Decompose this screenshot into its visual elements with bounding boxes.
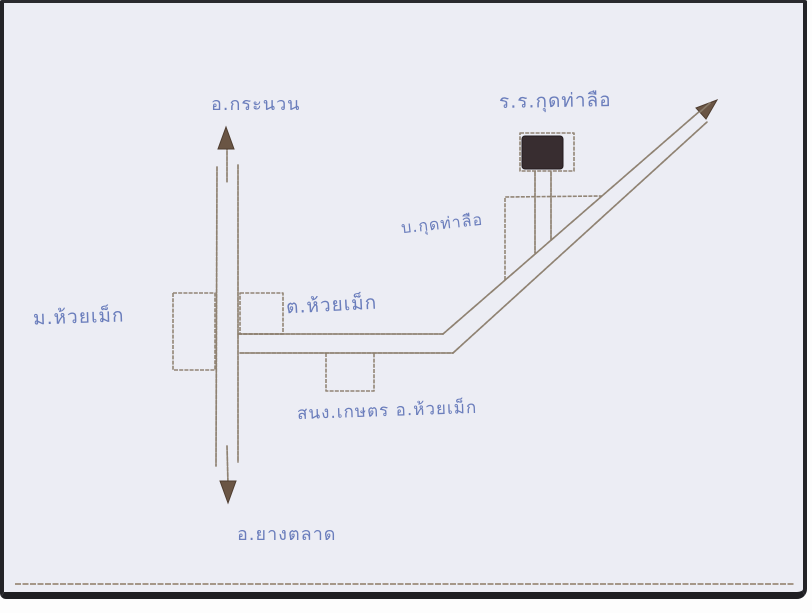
scanned-sketch-map: อ.กระนวน ร.ร.กุดท่าลือ บ.กุดท่าลือ ม.ห้ว…	[0, 0, 812, 613]
label-subdistrict-huai-mek: ต.ห้วยเม็ก	[285, 288, 378, 323]
label-school-kut-tha-lue: ร.ร.กุดท่าลือ	[499, 85, 612, 117]
label-village-huai-mek: ม.ห้วยเม็ก	[33, 300, 125, 333]
label-district-kranuan: อ.กระนวน	[211, 89, 300, 118]
label-district-yang-talat: อ.ยางตลาด	[237, 519, 337, 548]
